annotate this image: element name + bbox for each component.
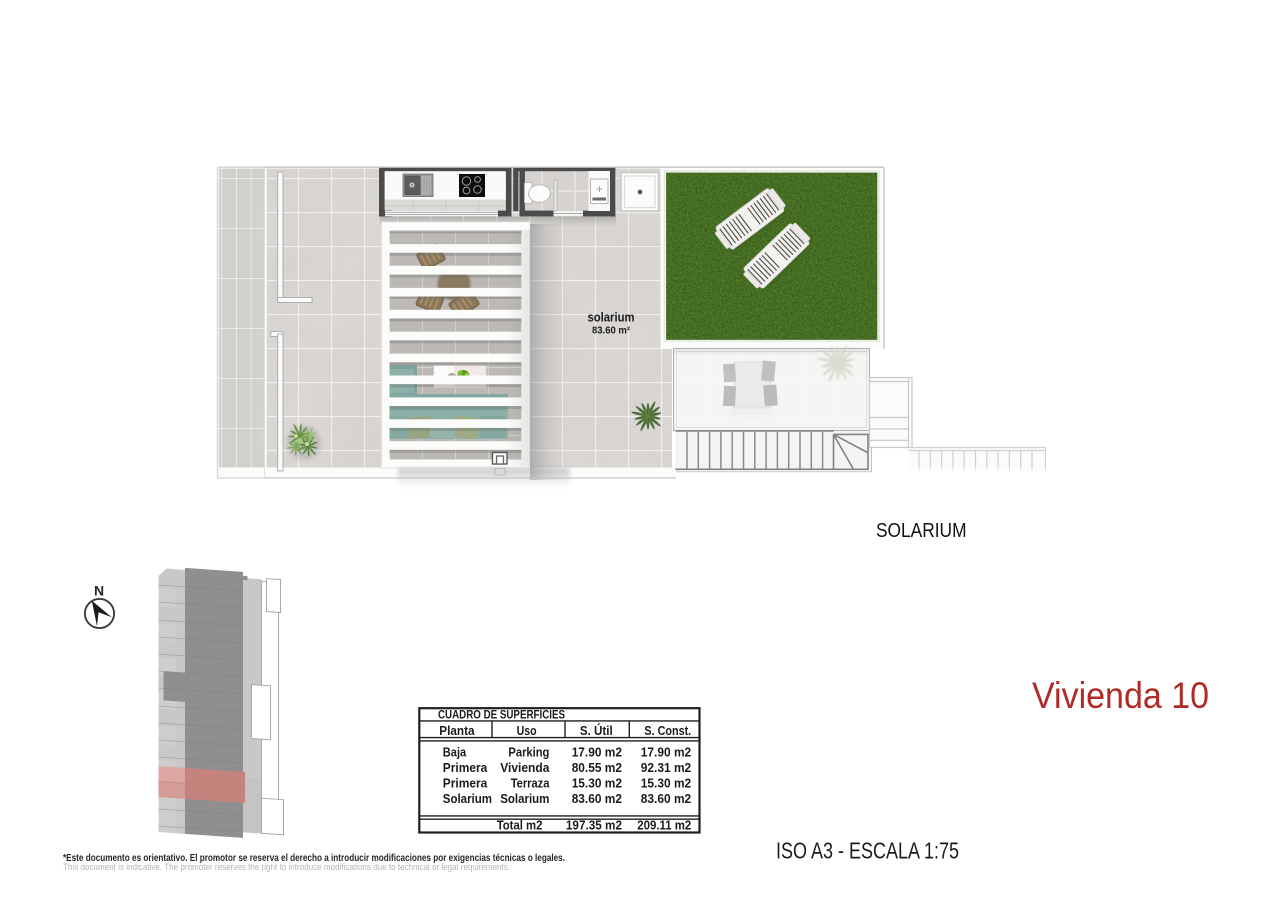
svg-text:Terraza: Terraza: [511, 775, 550, 790]
svg-text:ISO A3 - ESCALA 1:75: ISO A3 - ESCALA 1:75: [776, 838, 959, 864]
svg-text:Baja: Baja: [443, 744, 467, 759]
svg-text:83.60 m2: 83.60 m2: [572, 791, 622, 806]
svg-text:Solarium: Solarium: [443, 791, 492, 806]
svg-text:This document is indicative. T: This document is indicative. The promote…: [63, 862, 510, 873]
svg-text:Parking: Parking: [508, 744, 549, 759]
svg-text:Total m2: Total m2: [497, 818, 543, 833]
svg-text:15.30 m2: 15.30 m2: [641, 775, 691, 790]
svg-text:Uso: Uso: [517, 723, 537, 738]
svg-text:83.60 m²: 83.60 m²: [592, 325, 630, 337]
svg-text:Planta: Planta: [439, 723, 475, 738]
svg-text:Vivienda: Vivienda: [500, 760, 550, 775]
svg-text:17.90 m2: 17.90 m2: [641, 744, 691, 759]
svg-text:17.90 m2: 17.90 m2: [572, 744, 622, 759]
svg-text:N: N: [94, 583, 104, 599]
svg-text:92.31 m2: 92.31 m2: [641, 760, 691, 775]
svg-text:209.11 m2: 209.11 m2: [637, 818, 691, 833]
svg-text:Solarium: Solarium: [500, 791, 549, 806]
svg-text:Primera: Primera: [443, 760, 488, 775]
svg-text:S. Const.: S. Const.: [644, 723, 691, 738]
svg-text:15.30 m2: 15.30 m2: [572, 775, 622, 790]
svg-text:SOLARIUM: SOLARIUM: [876, 519, 967, 542]
svg-text:solarium: solarium: [588, 310, 635, 325]
svg-text:S. Útil: S. Útil: [580, 723, 613, 738]
svg-text:Primera: Primera: [443, 775, 488, 790]
svg-text:Vivienda 10: Vivienda 10: [1032, 675, 1209, 716]
svg-text:83.60 m2: 83.60 m2: [641, 791, 691, 806]
svg-text:80.55 m2: 80.55 m2: [572, 760, 622, 775]
svg-text:CUADRO DE SUPERFICIES: CUADRO DE SUPERFICIES: [438, 710, 565, 722]
svg-text:197.35 m2: 197.35 m2: [566, 818, 622, 833]
